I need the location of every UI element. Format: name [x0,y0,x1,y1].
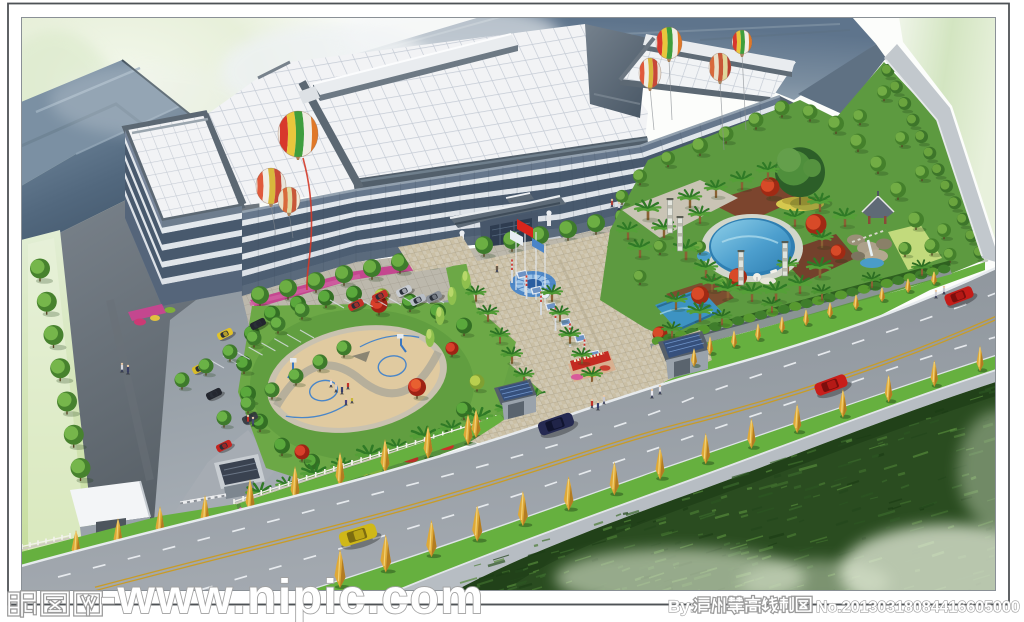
svg-text:No.20130318084416605000: No.20130318084416605000 [816,599,1020,616]
svg-text:-www.nipic.com: -www.nipic.com [100,571,485,622]
svg-text:By:: By: [668,597,695,616]
